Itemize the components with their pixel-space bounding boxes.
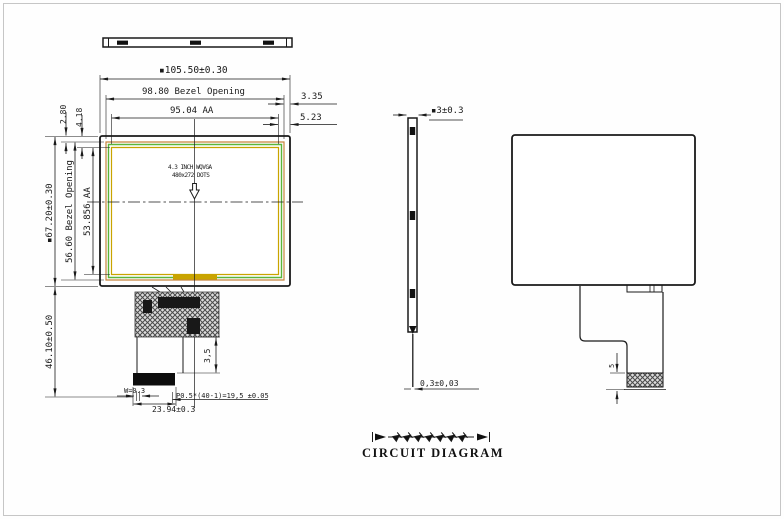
fpc-front: [133, 287, 219, 386]
dim-aa-height: 53.856 AA: [83, 187, 93, 236]
front-view: [87, 119, 303, 408]
dim-total-width: ▪105.50±0.30: [159, 66, 228, 76]
back-dimensions: [606, 353, 625, 404]
back-fpc-outline: [580, 286, 627, 373]
side-dimensions: [393, 115, 479, 389]
panel-label-line2: 480x272 DOTS: [172, 172, 209, 179]
circuit-diagram: [373, 432, 490, 442]
dim-connector-width: 23.94±0.3: [152, 405, 195, 415]
side-view: [408, 118, 417, 387]
terminal-right-icon: [477, 434, 488, 441]
dim-side-thickness: ▪3±0.3: [431, 106, 464, 116]
panel-label-line1: 4.3 INCH WQVGA: [168, 164, 212, 171]
fpc-component: [143, 300, 152, 313]
led-series: [392, 432, 467, 441]
terminal-left-icon: [375, 434, 386, 441]
dim-aa-width: 95.04 AA: [170, 106, 213, 116]
dim-fpc-tail-length: 3,5: [203, 349, 213, 363]
fpc-component: [187, 318, 200, 334]
drawing-canvas: [0, 0, 784, 519]
dim-offset-bezel-right: 3.35: [301, 92, 323, 102]
contact-bar: [173, 275, 217, 280]
dim-offset-bezel-top: 2.80: [59, 105, 69, 124]
drawing-sheet: ▪105.50±0.30 98.80 Bezel Opening 95.04 A…: [0, 0, 784, 519]
dim-pin-pitch: P0.5*(40-1)=19,5 ±0.05: [176, 391, 269, 401]
dim-module-to-connector: 46.10±0.50: [45, 315, 55, 369]
dim-bezel-height: 56.60 Bezel Opening: [65, 160, 75, 263]
dim-offset-aa-top: 4.18: [75, 108, 85, 127]
back-view: [512, 135, 695, 390]
back-connector-stiffener: [627, 373, 663, 387]
dim-side-fpc-thickness: 0,3±0,03: [420, 379, 459, 389]
driver-ic: [158, 297, 200, 308]
circuit-diagram-title: CIRCUIT DIAGRAM: [362, 446, 504, 461]
fpc-connector-pad: [133, 373, 175, 386]
dim-offset-aa-right: 5.23: [300, 113, 322, 123]
dim-total-height: ▪67.20±0.30: [45, 183, 55, 243]
dim-back-stiffener: 5: [607, 364, 617, 368]
top-view: [103, 38, 292, 47]
dim-bezel-width: 98.80 Bezel Opening: [142, 87, 245, 97]
dim-trace-width: W=0.3: [124, 386, 145, 396]
